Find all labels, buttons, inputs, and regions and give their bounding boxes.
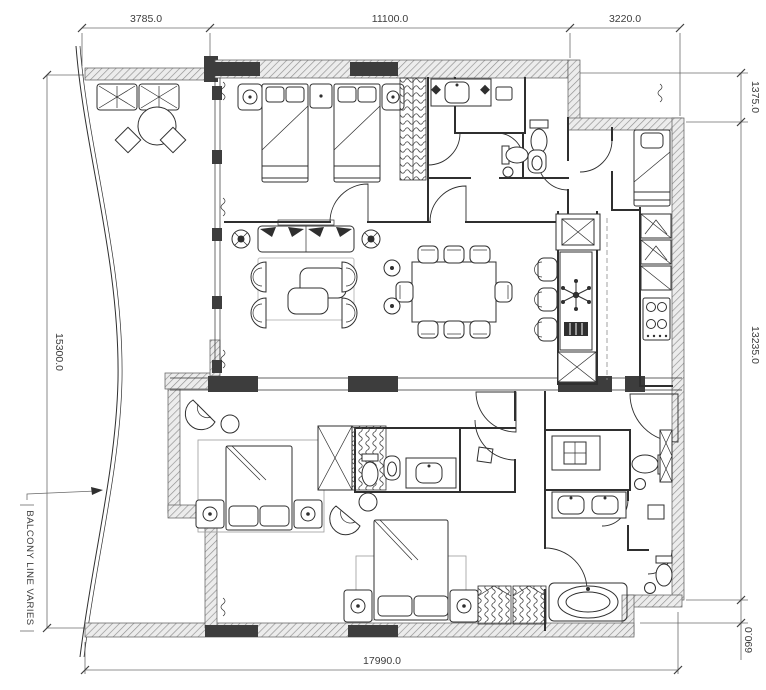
dining-area: [384, 246, 512, 338]
wardrobe: [400, 78, 426, 180]
armchair: [342, 262, 357, 292]
twin-bedroom: [238, 78, 426, 182]
dim-top-left: 3785.0: [130, 13, 162, 25]
double-bed: [374, 520, 448, 620]
twin-bed: [262, 84, 308, 182]
dim-right-bottom: 690.0: [743, 627, 755, 653]
toilet: [645, 556, 673, 594]
king-bed: [226, 446, 292, 530]
lounge-chair: [97, 84, 137, 110]
armchair: [342, 298, 357, 328]
guest-suite: [549, 430, 672, 621]
single-bed: [634, 130, 670, 206]
balcony-furniture: [97, 84, 186, 153]
floor-plan-document: 3785.0 11100.0 3220.0 15300.0 1375.0 132…: [0, 0, 766, 690]
elevator-shaft: [556, 214, 600, 250]
dining-chair: [495, 282, 512, 302]
nightstand: [450, 590, 478, 622]
toilet: [362, 454, 378, 486]
hand-basin: [503, 167, 513, 177]
toilet: [502, 146, 528, 177]
bar-stool: [535, 288, 558, 311]
dining-chair: [470, 246, 490, 263]
dim-top-right: 3220.0: [609, 13, 641, 25]
nightstand: [238, 84, 262, 110]
dining-chair: [418, 246, 438, 263]
armchair: [185, 400, 215, 430]
vanity: [431, 79, 491, 106]
dim-top-center: 11100.0: [372, 13, 409, 25]
toilet: [530, 120, 548, 153]
dining-chair: [444, 246, 464, 263]
shower-drain: [648, 505, 664, 519]
armchair: [251, 262, 266, 292]
sofa: [258, 220, 354, 252]
vanity: [406, 458, 456, 488]
wardrobe: [513, 586, 546, 624]
side-table: [221, 415, 239, 433]
second-bedroom: [330, 493, 546, 624]
nightstand: [196, 500, 224, 528]
bathtub: [549, 583, 627, 621]
patio-chair: [115, 127, 140, 152]
balcony-line: [76, 46, 122, 657]
nightstand: [310, 84, 332, 108]
bar-stool: [535, 258, 558, 281]
bidet: [528, 150, 546, 173]
armchair: [251, 298, 266, 328]
service-shaft: [558, 352, 596, 382]
balcony-note-label: BALCONY LINE VARIES: [24, 510, 35, 625]
dining-chair: [396, 282, 413, 302]
table-lamp: [362, 230, 380, 248]
twin-bed: [334, 84, 380, 182]
dresser: [552, 436, 600, 470]
top-bathroom: [431, 79, 548, 177]
dining-chair: [444, 321, 464, 338]
side-table: [359, 493, 377, 511]
dining-table: [412, 262, 496, 322]
shaft-duct: [660, 430, 672, 482]
armchair: [330, 506, 360, 535]
island-sink: [564, 322, 588, 336]
cooktop: [643, 298, 670, 340]
dim-bottom: 17990.0: [363, 655, 401, 667]
leader-arrowhead: [91, 487, 103, 495]
table-lamp: [232, 230, 250, 248]
bidet: [384, 456, 400, 480]
hand-basin: [645, 583, 656, 594]
double-vanity: [552, 492, 626, 518]
wardrobe: [478, 586, 511, 624]
hand-basin: [635, 479, 646, 490]
nightstand: [294, 500, 322, 528]
bar-stool: [535, 318, 558, 341]
dining-chair: [470, 321, 490, 338]
dim-right-top: 1375.0: [749, 81, 761, 113]
floor-plan-canvas: 3785.0 11100.0 3220.0 15300.0 1375.0 132…: [0, 0, 766, 690]
dim-left: 15300.0: [53, 333, 65, 371]
living-room: [232, 220, 380, 328]
coffee-table: [288, 268, 346, 314]
master-bedroom: [185, 400, 386, 532]
kitchen: [535, 214, 601, 382]
cabinet-column: [641, 214, 671, 290]
dining-chair: [418, 321, 438, 338]
dim-right-main: 13235.0: [749, 326, 761, 364]
shower-drain: [477, 447, 493, 463]
shower-drain: [496, 87, 512, 100]
nightstand: [344, 590, 372, 622]
lounge-chair: [139, 84, 179, 110]
